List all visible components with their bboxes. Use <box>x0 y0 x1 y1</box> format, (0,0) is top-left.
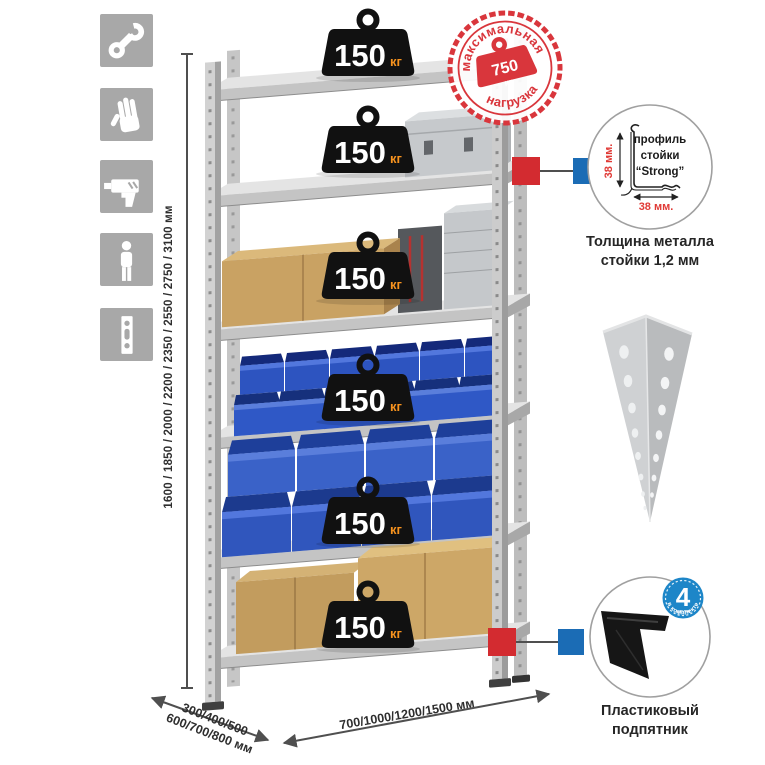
plastic-foot-detail: 4 штуки в комплекте <box>590 577 710 697</box>
svg-text:150: 150 <box>334 135 386 170</box>
profile-caption-line2: стойки 1,2 мм <box>601 253 700 269</box>
post-profile-detail: 38 мм. 38 мм. профиль стойки “Strong” <box>588 105 712 229</box>
weight-badge: 150 кг <box>316 12 420 83</box>
svg-text:“Strong”: “Strong” <box>636 166 685 178</box>
svg-text:стойки: стойки <box>641 150 680 162</box>
svg-text:150: 150 <box>334 261 386 296</box>
svg-text:кг: кг <box>390 151 403 166</box>
profile-caption: Толщина металла стойки 1,2 мм <box>555 233 745 271</box>
shelving-rack-infographic: 150 кг 150 кг 150 кг 150 <box>0 0 765 765</box>
rack-illustration: 150 кг 150 кг 150 кг 150 <box>0 0 765 765</box>
plastic-foot <box>512 674 530 682</box>
height-dimension-line <box>181 54 193 688</box>
callout-bottom <box>488 628 584 656</box>
svg-text:кг: кг <box>390 626 403 641</box>
svg-text:кг: кг <box>390 399 403 414</box>
foot-caption-line1: Пластиковый <box>601 703 699 719</box>
svg-text:профиль: профиль <box>634 134 687 146</box>
weight-badge: 150 кг <box>316 109 420 179</box>
foot-caption: Пластиковый подпятник <box>555 702 745 740</box>
included-count-badge: 4 штуки в комплекте <box>663 578 704 619</box>
svg-text:150: 150 <box>334 38 386 73</box>
svg-text:150: 150 <box>334 506 386 541</box>
svg-text:кг: кг <box>390 522 403 537</box>
svg-text:38 мм.: 38 мм. <box>639 201 674 213</box>
height-dimension-label: 1600 / 1850 / 2000 / 2200 / 2350 / 2550 … <box>163 27 181 687</box>
callout-top <box>512 157 598 185</box>
svg-text:150: 150 <box>334 383 386 418</box>
profile-caption-line1: Толщина металла <box>586 234 714 250</box>
foot-caption-line2: подпятник <box>612 722 688 738</box>
svg-text:кг: кг <box>390 277 403 292</box>
svg-text:150: 150 <box>334 610 386 645</box>
svg-text:38 мм.: 38 мм. <box>603 144 615 179</box>
svg-text:кг: кг <box>390 54 403 69</box>
svg-text:4: 4 <box>676 582 691 612</box>
rack-post-image <box>603 316 692 522</box>
